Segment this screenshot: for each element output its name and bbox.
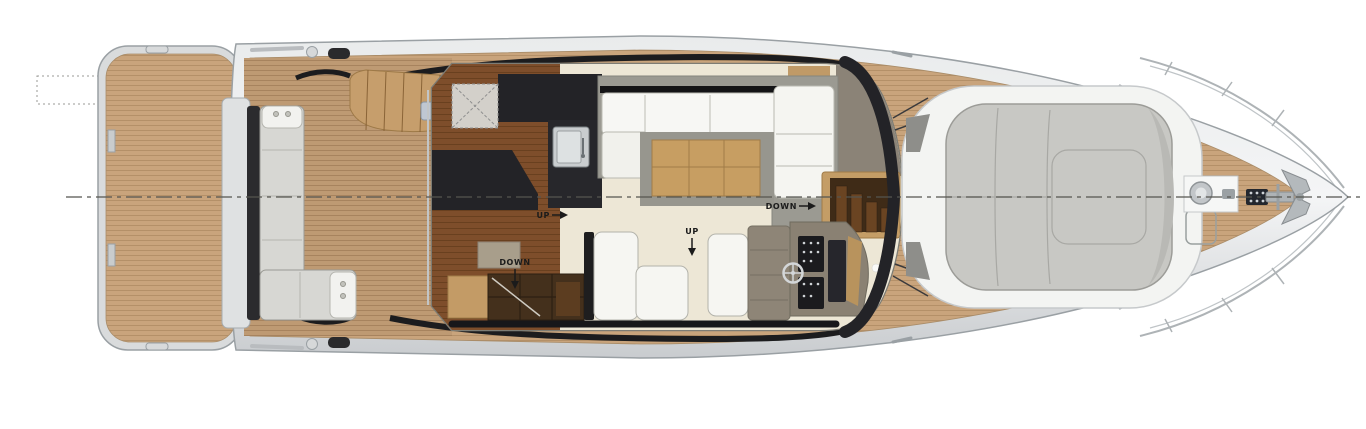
window-sill bbox=[600, 86, 782, 93]
platform-fitting bbox=[108, 130, 115, 152]
fuel-cap-icon bbox=[307, 339, 318, 350]
swim-platform bbox=[98, 46, 242, 350]
instrument-screen bbox=[828, 240, 846, 302]
cleat-icon bbox=[146, 343, 168, 350]
helm-seat bbox=[708, 226, 790, 320]
vent-icon bbox=[328, 337, 350, 348]
sink-icon bbox=[553, 127, 589, 167]
platform-fitting bbox=[108, 244, 115, 266]
yacht-deck-plan: UP DOWN UP DOWN bbox=[0, 0, 1366, 429]
instrument-panel bbox=[798, 236, 824, 272]
coffee-table bbox=[652, 140, 760, 196]
down-label: DOWN bbox=[499, 258, 530, 267]
down-label: DOWN bbox=[766, 202, 797, 211]
cleat-icon bbox=[146, 46, 168, 53]
helm-console bbox=[784, 222, 869, 316]
boat-hook-icon bbox=[252, 48, 302, 50]
deck-plan-canvas: UP DOWN UP DOWN bbox=[0, 0, 1366, 429]
bench-backrest bbox=[247, 106, 260, 320]
steering-wheel-icon bbox=[784, 264, 803, 283]
up-label: UP bbox=[685, 227, 699, 236]
label-down-forward: DOWN bbox=[766, 202, 816, 211]
anchor-windlass bbox=[1184, 176, 1238, 212]
instrument-panel bbox=[798, 277, 824, 309]
fuel-cap-icon bbox=[307, 47, 318, 58]
roof-hatch-icon bbox=[452, 84, 498, 128]
boat-hook-icon bbox=[252, 346, 302, 348]
vent-icon bbox=[328, 48, 350, 59]
up-label: UP bbox=[536, 211, 550, 220]
cabinet-tan bbox=[448, 276, 488, 318]
